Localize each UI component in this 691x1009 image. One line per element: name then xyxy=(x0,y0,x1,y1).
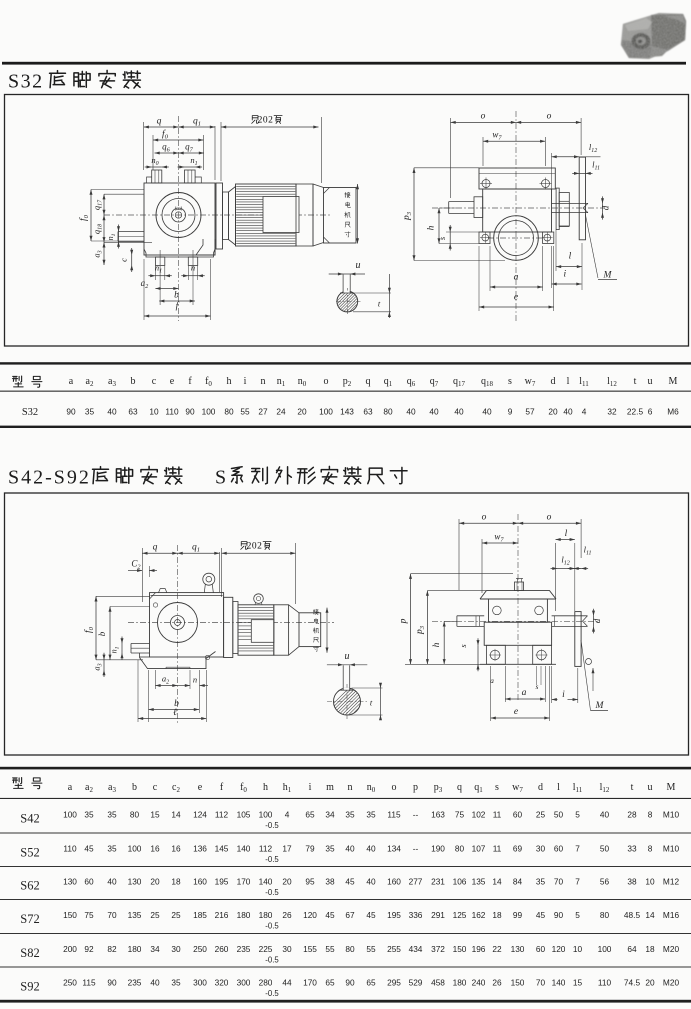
svg-text:38: 38 xyxy=(325,877,335,887)
svg-text:56: 56 xyxy=(600,877,610,887)
svg-text:S82: S82 xyxy=(20,946,39,960)
svg-text:27: 27 xyxy=(258,407,268,417)
svg-text:82: 82 xyxy=(107,944,117,954)
svg-text:225: 225 xyxy=(259,944,273,954)
svg-text:40: 40 xyxy=(345,843,355,853)
svg-text:80: 80 xyxy=(224,407,234,417)
svg-text:40: 40 xyxy=(366,843,376,853)
svg-text:163: 163 xyxy=(431,809,445,819)
svg-text:55: 55 xyxy=(325,944,335,954)
svg-text:n: n xyxy=(348,782,353,793)
svg-text:35: 35 xyxy=(345,809,355,819)
svg-text:150: 150 xyxy=(511,978,525,988)
svg-text:130: 130 xyxy=(63,877,77,887)
svg-text:S: S xyxy=(215,467,226,489)
svg-text:28: 28 xyxy=(627,809,637,819)
svg-text:c: c xyxy=(152,376,157,387)
svg-text:o: o xyxy=(481,112,486,122)
svg-text:p: p xyxy=(413,782,418,793)
svg-text:190: 190 xyxy=(431,843,445,853)
svg-text:o: o xyxy=(392,782,397,793)
svg-text:h: h xyxy=(432,642,442,647)
svg-text:195: 195 xyxy=(387,910,401,920)
svg-text:p: p xyxy=(399,618,409,624)
svg-text:277: 277 xyxy=(409,877,423,887)
svg-text:38: 38 xyxy=(627,877,637,887)
svg-text:92: 92 xyxy=(84,944,94,954)
svg-text:35: 35 xyxy=(107,843,117,853)
svg-text:300: 300 xyxy=(193,978,207,988)
svg-text:e: e xyxy=(170,376,175,387)
svg-text:45: 45 xyxy=(366,910,376,920)
svg-text:55: 55 xyxy=(366,944,376,954)
svg-text:143: 143 xyxy=(340,407,354,417)
svg-text:q: q xyxy=(366,376,371,387)
svg-text:40: 40 xyxy=(600,809,610,819)
svg-text:40: 40 xyxy=(454,407,464,417)
svg-text:11: 11 xyxy=(493,809,502,819)
svg-text:160: 160 xyxy=(387,877,401,887)
svg-text:h: h xyxy=(263,782,268,793)
svg-text:10: 10 xyxy=(645,877,655,887)
svg-text:20: 20 xyxy=(645,978,655,988)
svg-text:60: 60 xyxy=(513,809,523,819)
svg-text:o: o xyxy=(547,112,552,122)
svg-text:320: 320 xyxy=(215,978,229,988)
svg-text:l: l xyxy=(567,376,570,387)
svg-text:S92: S92 xyxy=(20,980,39,994)
svg-text:84: 84 xyxy=(513,877,523,887)
svg-text:u: u xyxy=(345,651,350,662)
svg-text:140: 140 xyxy=(237,843,251,853)
svg-text:35: 35 xyxy=(171,978,181,988)
svg-text:35: 35 xyxy=(366,809,376,819)
svg-text:100: 100 xyxy=(63,809,77,819)
svg-text:M: M xyxy=(669,376,678,387)
svg-text:112: 112 xyxy=(215,809,229,819)
svg-text:74.5: 74.5 xyxy=(624,978,641,988)
svg-text:34: 34 xyxy=(325,809,335,819)
svg-text:291: 291 xyxy=(431,910,445,920)
svg-text:--: -- xyxy=(413,843,419,853)
svg-text:134: 134 xyxy=(387,843,401,853)
svg-text:195: 195 xyxy=(215,877,229,887)
svg-text:d: d xyxy=(538,782,543,793)
svg-text:18: 18 xyxy=(171,877,181,887)
svg-text:4: 4 xyxy=(582,407,587,417)
svg-text:i: i xyxy=(309,782,312,793)
svg-text:M: M xyxy=(667,782,676,793)
svg-text:u: u xyxy=(648,376,653,387)
svg-text:18: 18 xyxy=(492,910,502,920)
svg-text:o: o xyxy=(547,513,552,523)
svg-text:t: t xyxy=(634,376,637,387)
svg-text:30: 30 xyxy=(536,843,546,853)
svg-text:155: 155 xyxy=(303,944,317,954)
svg-text:40: 40 xyxy=(107,407,117,417)
svg-text:6: 6 xyxy=(648,407,653,417)
svg-text:b: b xyxy=(132,782,137,793)
svg-text:M: M xyxy=(595,701,605,711)
svg-text:255: 255 xyxy=(387,944,401,954)
svg-text:170: 170 xyxy=(303,978,317,988)
svg-text:c: c xyxy=(153,782,158,793)
svg-text:106: 106 xyxy=(453,877,467,887)
svg-text:434: 434 xyxy=(409,944,423,954)
svg-text:180: 180 xyxy=(453,978,467,988)
svg-text:S42: S42 xyxy=(20,811,39,825)
svg-text:20: 20 xyxy=(297,407,307,417)
svg-text:22: 22 xyxy=(492,944,502,954)
svg-text:180: 180 xyxy=(259,910,273,920)
svg-text:80: 80 xyxy=(130,809,140,819)
svg-text:10: 10 xyxy=(149,407,159,417)
svg-text:b: b xyxy=(174,291,179,301)
svg-text:s: s xyxy=(536,682,539,691)
svg-text:235: 235 xyxy=(128,978,142,988)
svg-text:136: 136 xyxy=(193,843,207,853)
svg-text:100: 100 xyxy=(202,407,216,417)
svg-text:35: 35 xyxy=(85,407,95,417)
svg-text:-0.5: -0.5 xyxy=(265,855,279,864)
svg-text:44: 44 xyxy=(282,978,292,988)
svg-text:216: 216 xyxy=(215,910,229,920)
svg-text:16: 16 xyxy=(171,843,181,853)
svg-text:s: s xyxy=(495,782,499,793)
svg-text:140: 140 xyxy=(552,978,566,988)
svg-text:30: 30 xyxy=(282,944,292,954)
svg-text:45: 45 xyxy=(345,877,355,887)
svg-text:202: 202 xyxy=(258,116,274,126)
svg-text:100: 100 xyxy=(598,944,612,954)
svg-text:112: 112 xyxy=(259,843,273,853)
svg-text:45: 45 xyxy=(325,910,335,920)
svg-text:16: 16 xyxy=(150,843,160,853)
svg-text:--: -- xyxy=(413,809,419,819)
svg-text:336: 336 xyxy=(409,910,423,920)
svg-text:529: 529 xyxy=(409,978,423,988)
svg-text:90: 90 xyxy=(345,978,355,988)
svg-text:S62: S62 xyxy=(20,879,39,893)
svg-text:40: 40 xyxy=(107,877,117,887)
svg-text:90: 90 xyxy=(66,407,76,417)
svg-text:105: 105 xyxy=(237,809,251,819)
svg-text:e: e xyxy=(514,293,518,303)
svg-text:150: 150 xyxy=(453,944,467,954)
svg-text:d: d xyxy=(592,618,602,623)
svg-text:-0.5: -0.5 xyxy=(265,821,279,830)
svg-text:30: 30 xyxy=(171,944,181,954)
svg-text:14: 14 xyxy=(171,809,181,819)
svg-text:115: 115 xyxy=(387,809,401,819)
svg-text:90: 90 xyxy=(185,407,195,417)
svg-text:7: 7 xyxy=(575,877,580,887)
svg-text:50: 50 xyxy=(600,843,610,853)
svg-text:231: 231 xyxy=(431,877,445,887)
svg-text:u: u xyxy=(356,260,361,271)
svg-text:25: 25 xyxy=(171,910,181,920)
svg-text:250: 250 xyxy=(193,944,207,954)
svg-text:8: 8 xyxy=(648,843,653,853)
svg-text:63: 63 xyxy=(128,407,138,417)
svg-text:40: 40 xyxy=(366,877,376,887)
svg-text:h: h xyxy=(227,376,232,387)
svg-text:b: b xyxy=(97,631,107,636)
svg-text:135: 135 xyxy=(472,877,486,887)
svg-text:110: 110 xyxy=(598,978,612,988)
svg-text:25: 25 xyxy=(536,809,546,819)
svg-text:n: n xyxy=(193,675,197,685)
svg-text:180: 180 xyxy=(128,944,142,954)
svg-text:90: 90 xyxy=(107,978,117,988)
svg-text:90: 90 xyxy=(554,910,564,920)
svg-text:M10: M10 xyxy=(663,809,680,819)
svg-text:20: 20 xyxy=(548,407,558,417)
svg-text:S32: S32 xyxy=(8,71,44,93)
svg-text:26: 26 xyxy=(492,978,502,988)
svg-text:M12: M12 xyxy=(663,877,680,887)
svg-text:67: 67 xyxy=(345,910,355,920)
svg-text:i: i xyxy=(563,270,566,280)
svg-text:l: l xyxy=(565,529,568,539)
svg-text:99: 99 xyxy=(513,910,523,920)
svg-text:S32: S32 xyxy=(22,407,38,418)
svg-text:57: 57 xyxy=(525,407,535,417)
svg-text:q: q xyxy=(457,782,462,793)
svg-text:32: 32 xyxy=(607,407,617,417)
svg-text:M: M xyxy=(603,271,613,281)
svg-text:45: 45 xyxy=(84,843,94,853)
svg-text:45: 45 xyxy=(536,910,546,920)
svg-text:55: 55 xyxy=(240,407,250,417)
svg-text:200: 200 xyxy=(63,944,77,954)
svg-text:458: 458 xyxy=(431,978,445,988)
svg-text:40: 40 xyxy=(429,407,439,417)
svg-text:-0.5: -0.5 xyxy=(265,989,279,998)
svg-text:65: 65 xyxy=(325,978,335,988)
svg-text:79: 79 xyxy=(305,843,315,853)
svg-text:4: 4 xyxy=(285,809,290,819)
svg-text:S42-S92: S42-S92 xyxy=(8,467,91,489)
svg-text:22.5: 22.5 xyxy=(627,407,644,417)
svg-text:63: 63 xyxy=(363,407,373,417)
svg-text:100: 100 xyxy=(259,809,273,819)
svg-text:b: b xyxy=(131,376,136,387)
svg-text:20: 20 xyxy=(150,877,160,887)
svg-text:75: 75 xyxy=(84,910,94,920)
svg-text:95: 95 xyxy=(305,877,315,887)
svg-text:q: q xyxy=(157,117,162,127)
svg-text:i: i xyxy=(244,376,247,387)
svg-text:35: 35 xyxy=(107,809,117,819)
svg-text:20: 20 xyxy=(282,877,292,887)
svg-text:25: 25 xyxy=(150,910,160,920)
svg-text:40: 40 xyxy=(563,407,573,417)
svg-text:d: d xyxy=(551,376,556,387)
svg-text:35: 35 xyxy=(536,877,546,887)
svg-text:202: 202 xyxy=(247,542,263,552)
svg-text:40: 40 xyxy=(150,978,160,988)
svg-text:d: d xyxy=(601,205,611,210)
svg-text:M10: M10 xyxy=(663,843,680,853)
svg-text:135: 135 xyxy=(128,910,142,920)
svg-text:75: 75 xyxy=(455,809,465,819)
svg-text:40: 40 xyxy=(482,407,492,417)
svg-text:M6: M6 xyxy=(667,407,679,417)
svg-text:80: 80 xyxy=(345,944,355,954)
svg-text:100: 100 xyxy=(319,407,333,417)
svg-text:80: 80 xyxy=(600,910,610,920)
svg-text:196: 196 xyxy=(472,944,486,954)
svg-text:a: a xyxy=(68,782,73,793)
svg-text:145: 145 xyxy=(215,843,229,853)
svg-text:300: 300 xyxy=(237,978,251,988)
svg-text:a: a xyxy=(69,376,74,387)
svg-text:-0.5: -0.5 xyxy=(265,955,279,964)
svg-text:h: h xyxy=(427,225,437,230)
svg-text:295: 295 xyxy=(387,978,401,988)
svg-text:280: 280 xyxy=(259,978,273,988)
svg-text:14: 14 xyxy=(492,877,502,887)
svg-text:40: 40 xyxy=(406,407,416,417)
svg-text:124: 124 xyxy=(193,809,207,819)
svg-text:l: l xyxy=(557,782,560,793)
svg-text:9: 9 xyxy=(508,407,513,417)
svg-text:15: 15 xyxy=(573,978,583,988)
svg-text:S72: S72 xyxy=(20,912,39,926)
svg-text:120: 120 xyxy=(303,910,317,920)
svg-text:17: 17 xyxy=(282,843,292,853)
svg-text:35: 35 xyxy=(325,843,335,853)
svg-text:-0.5: -0.5 xyxy=(265,888,279,897)
svg-text:60: 60 xyxy=(84,877,94,887)
svg-text:u: u xyxy=(648,782,653,793)
svg-text:c: c xyxy=(119,258,129,262)
svg-text:240: 240 xyxy=(472,978,486,988)
svg-text:65: 65 xyxy=(366,978,376,988)
svg-text:130: 130 xyxy=(128,877,142,887)
svg-text:70: 70 xyxy=(107,910,117,920)
svg-text:120: 120 xyxy=(552,944,566,954)
svg-text:70: 70 xyxy=(554,877,564,887)
svg-text:250: 250 xyxy=(63,978,77,988)
svg-text:48.5: 48.5 xyxy=(624,910,641,920)
svg-text:260: 260 xyxy=(215,944,229,954)
svg-text:65: 65 xyxy=(305,809,315,819)
svg-text:S52: S52 xyxy=(20,845,39,859)
svg-text:372: 372 xyxy=(431,944,445,954)
svg-text:M16: M16 xyxy=(663,910,680,920)
svg-text:o: o xyxy=(482,513,487,523)
svg-text:l: l xyxy=(569,252,572,262)
svg-text:a: a xyxy=(522,688,527,698)
svg-text:s: s xyxy=(508,376,512,387)
svg-text:64: 64 xyxy=(627,944,637,954)
svg-text:8: 8 xyxy=(648,809,653,819)
svg-text:5: 5 xyxy=(575,809,580,819)
svg-text:11: 11 xyxy=(493,843,502,853)
svg-text:162: 162 xyxy=(472,910,486,920)
svg-text:125: 125 xyxy=(453,910,467,920)
svg-text:o: o xyxy=(324,376,329,387)
svg-text:m: m xyxy=(326,782,334,793)
svg-text:q: q xyxy=(153,543,158,553)
svg-text:130: 130 xyxy=(511,944,525,954)
svg-text:35: 35 xyxy=(84,809,94,819)
svg-text:115: 115 xyxy=(82,978,96,988)
svg-text:110: 110 xyxy=(63,843,77,853)
svg-text:ℓ: ℓ xyxy=(173,708,177,718)
svg-text:160: 160 xyxy=(193,877,207,887)
svg-text:i: i xyxy=(562,690,565,700)
svg-text:34: 34 xyxy=(150,944,160,954)
svg-text:100: 100 xyxy=(128,843,142,853)
svg-text:e: e xyxy=(514,707,518,717)
svg-text:69: 69 xyxy=(513,843,523,853)
svg-text:n: n xyxy=(261,376,266,387)
svg-text:180: 180 xyxy=(237,910,251,920)
svg-text:60: 60 xyxy=(536,944,546,954)
svg-text:M20: M20 xyxy=(663,944,680,954)
svg-text:170: 170 xyxy=(237,877,251,887)
svg-text:80: 80 xyxy=(455,843,465,853)
svg-text:70: 70 xyxy=(536,978,546,988)
svg-text:e: e xyxy=(198,782,203,793)
svg-text:102: 102 xyxy=(472,809,486,819)
svg-text:107: 107 xyxy=(472,843,486,853)
svg-text:15: 15 xyxy=(150,809,160,819)
svg-text:50: 50 xyxy=(554,809,564,819)
svg-text:a: a xyxy=(514,273,519,283)
svg-text:7: 7 xyxy=(575,843,580,853)
svg-text:60: 60 xyxy=(554,843,564,853)
svg-text:33: 33 xyxy=(627,843,637,853)
svg-text:5: 5 xyxy=(575,910,580,920)
svg-text:140: 140 xyxy=(259,877,273,887)
svg-text:235: 235 xyxy=(237,944,251,954)
svg-text:80: 80 xyxy=(383,407,393,417)
svg-text:26: 26 xyxy=(282,910,292,920)
svg-text:18: 18 xyxy=(645,944,655,954)
svg-text:150: 150 xyxy=(63,910,77,920)
svg-text:185: 185 xyxy=(193,910,207,920)
svg-text:14: 14 xyxy=(645,910,655,920)
svg-text:M20: M20 xyxy=(663,978,680,988)
svg-text:110: 110 xyxy=(165,407,179,417)
svg-text:t: t xyxy=(631,782,634,793)
svg-text:24: 24 xyxy=(276,407,286,417)
svg-text:-0.5: -0.5 xyxy=(265,922,279,931)
svg-text:10: 10 xyxy=(573,944,583,954)
